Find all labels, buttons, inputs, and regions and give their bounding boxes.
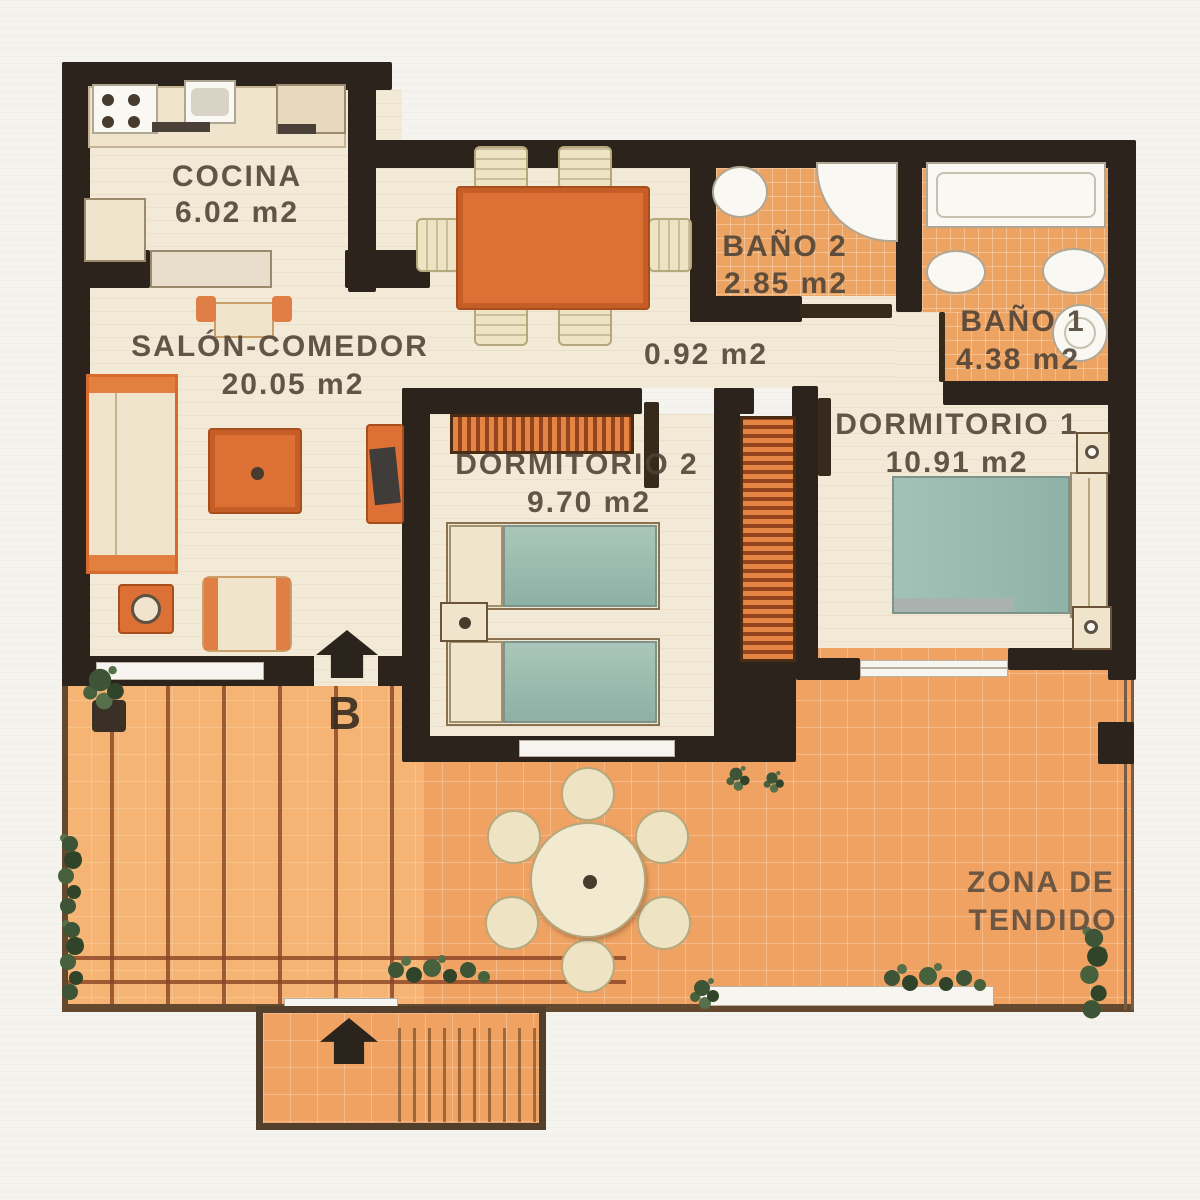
wall-dorm1-bottom-stub [796,658,860,680]
dining-chair [648,218,692,272]
label-dorm2-name: DORMITORIO 2 [455,448,698,482]
side-table [118,584,174,634]
burner [102,116,114,128]
terrace-table [530,822,646,938]
burner [102,94,114,106]
plant [388,962,404,978]
fridge [84,198,146,262]
bano2-door-leaf [800,304,892,318]
sofa-backrest-line [115,393,117,555]
dining-chair [416,218,460,272]
terrace-chair [561,767,615,821]
armchair-arm [276,578,290,650]
coffee-table [208,428,302,514]
mattress [503,641,657,723]
side-table-tray [131,594,161,624]
headboard [1070,472,1108,618]
wall-bano2-left [690,140,716,322]
dining-chair [474,146,528,190]
wall-right-outer [1108,140,1136,680]
terrace-post [1098,722,1134,764]
plant [766,772,777,783]
armchair-arm [204,578,218,650]
label-bano2-area: 2.85 m2 [724,267,848,301]
tv-cabinet [366,424,404,524]
label-dorm1-area: 10.91 m2 [886,446,1029,480]
plant [62,836,78,852]
wall-bano-divider [896,140,922,312]
table-center [583,875,597,889]
pillow [449,525,503,607]
dining-table [456,186,650,310]
label-salon-area: 20.05 m2 [222,368,365,402]
label-bano2-name: BAÑO 2 [722,230,847,264]
wall-bano1-bottom [943,381,1112,405]
dorm2-window [519,740,675,757]
plant [89,669,111,691]
toilet [712,166,768,218]
label-bano1-name: BAÑO 1 [960,305,1085,339]
kitchen-sink [184,80,236,124]
bathtub [926,162,1106,228]
label-bano1-area: 4.38 m2 [956,343,1080,377]
floor-plan: COCINA 6.02 m2 SALÓN-COMEDOR 20.05 m2 BA… [0,0,1200,1200]
wall-dorm1-bottom [1008,648,1112,670]
bathtub-basin [936,172,1096,218]
bano1-door-opening [896,312,943,381]
label-dorm1-name: DORMITORIO 1 [835,408,1078,442]
label-entrance-letter: B [328,686,362,740]
plant [64,922,80,938]
wall-dorm2-left [402,388,430,760]
kitchen-peninsula [150,250,272,288]
label-hall-area: 0.92 m2 [644,338,768,372]
pergola-rail [66,956,626,960]
nightstand [1076,432,1110,474]
pergola-rail [66,980,626,984]
burner [128,94,140,106]
lamp [1084,620,1098,634]
pillow [449,641,503,723]
plant [884,970,900,986]
stove [92,84,158,134]
toilet [1042,248,1106,294]
kitchen-handle [278,124,316,134]
table-center-knob [251,467,264,480]
bidet [926,250,986,294]
label-salon-name: SALÓN-COMEDOR [131,330,429,364]
label-cocina-name: COCINA [172,160,302,194]
bano1-door-leaf [939,312,945,382]
terrace-chair [487,810,541,864]
armchair-corner [272,296,292,322]
twin-bed [446,638,660,726]
terrace-chair [485,896,539,950]
label-zona-line2: TENDIDO [969,904,1118,938]
twin-bed [446,522,660,610]
sink-basin [191,88,229,116]
nightstand [1072,606,1112,650]
wall-dorm2-right [714,388,740,668]
plant [694,980,710,996]
sofa [86,374,178,574]
kitchen-handle [152,122,210,132]
salon-window [96,662,264,680]
terrace-chair [561,939,615,993]
tv [369,447,401,505]
dorm1-sliding-door-rail [860,667,1008,669]
label-dorm2-area: 9.70 m2 [527,486,651,520]
nightstand [440,602,488,642]
wall-dorm2-top [402,388,642,414]
label-zona-line1: ZONA DE [967,866,1115,900]
terrace-chair [635,810,689,864]
sofa-arm [89,377,175,393]
dining-chair [558,146,612,190]
burner [128,116,140,128]
headboard-line [1088,478,1090,612]
armchair [202,576,292,652]
stairs [398,1028,538,1122]
terrace-chair [637,896,691,950]
bed-bench [894,598,1014,612]
terrace-bench [700,986,994,1006]
sofa-arm [89,555,175,571]
double-bed [892,476,1070,614]
plant [730,768,743,781]
dorm1-door-leaf [818,398,831,476]
mattress [503,525,657,607]
plant-pot [92,700,126,732]
label-cocina-area: 6.02 m2 [175,196,299,230]
lamp [1085,445,1099,459]
wardrobe-tall [740,416,796,662]
lamp [459,617,471,629]
armchair-corner [196,296,216,322]
